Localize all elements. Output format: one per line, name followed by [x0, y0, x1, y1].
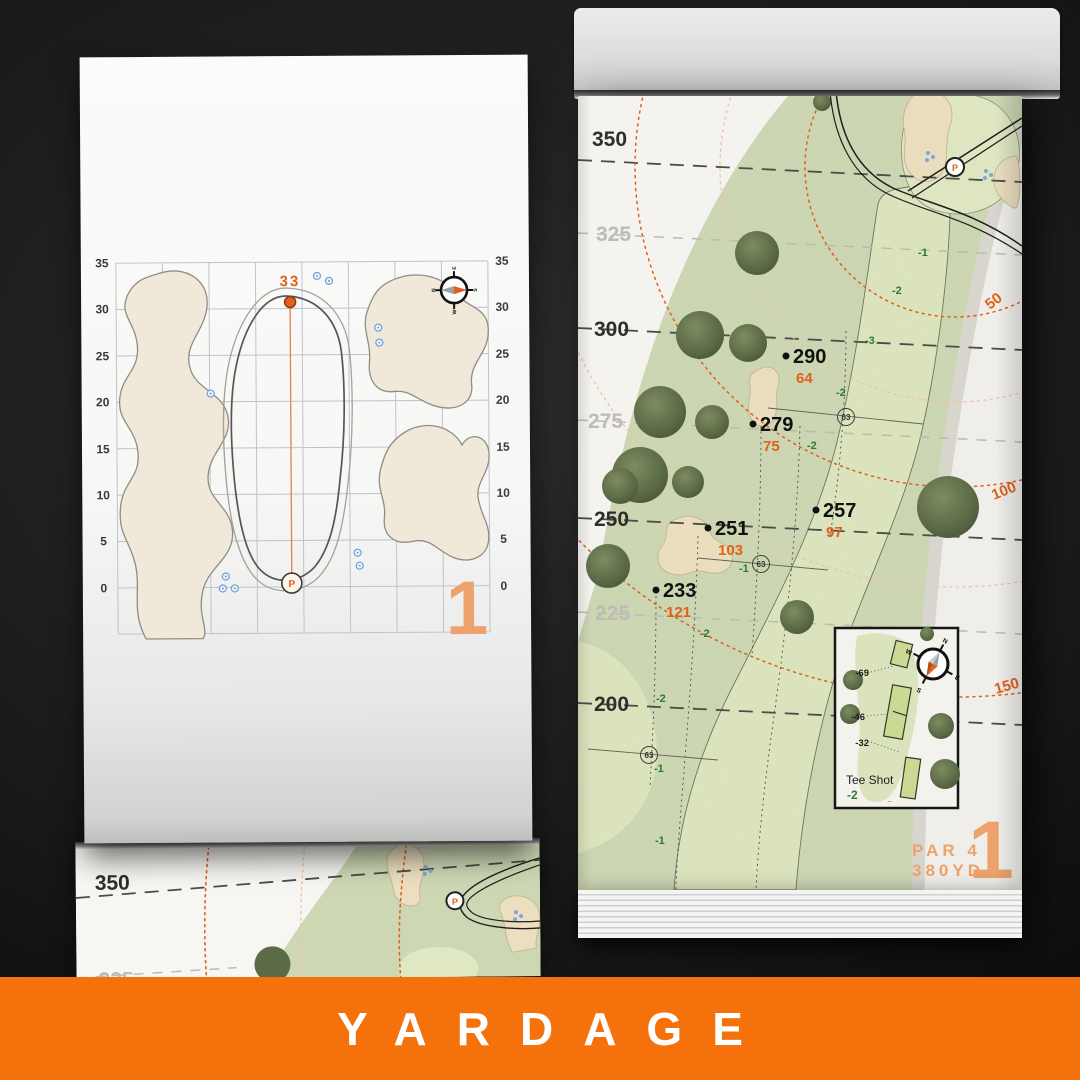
- svg-text:275: 275: [588, 410, 623, 433]
- green-outline-outer: [223, 288, 354, 591]
- bunkers: [119, 269, 491, 639]
- svg-text:-2: -2: [836, 387, 846, 399]
- hole-map: P 63 63 63 -1 -2 -3 -2 -2 -1 -2 -2 -1 -1: [578, 96, 1022, 890]
- svg-text:35: 35: [95, 256, 109, 270]
- svg-text:10: 10: [497, 486, 511, 500]
- svg-text:15: 15: [496, 440, 510, 454]
- svg-text:-1: -1: [739, 563, 749, 575]
- svg-text:15: 15: [96, 442, 110, 456]
- svg-text:121: 121: [666, 604, 691, 621]
- page-stack-edges[interactable]: [578, 890, 1022, 938]
- hole-map-art: P 63 63 63 -1 -2 -3 -2 -2 -1 -2 -2 -1 -1: [578, 96, 1022, 890]
- tee-shot-inset: -69 -46 -32 N E S: [835, 624, 974, 808]
- svg-text:75: 75: [763, 438, 780, 455]
- svg-text:-2: -2: [700, 628, 710, 640]
- svg-text:257: 257: [823, 500, 856, 522]
- pin-symbol: P: [288, 579, 295, 590]
- svg-text:20: 20: [496, 393, 510, 407]
- svg-text:325: 325: [596, 223, 631, 246]
- svg-text:63: 63: [842, 413, 851, 422]
- svg-text:20: 20: [96, 395, 110, 409]
- svg-text:350: 350: [592, 128, 627, 151]
- svg-text:290: 290: [793, 346, 826, 368]
- bottom-page-map: P 350 325: [75, 838, 540, 980]
- right-page-hole-map: P 63 63 63 -1 -2 -3 -2 -2 -1 -2 -2 -1 -1: [578, 8, 1022, 938]
- svg-text:25: 25: [96, 349, 110, 363]
- tee-dots: ..: [887, 794, 892, 804]
- hole-number: 1: [968, 805, 1014, 890]
- compass-w: W: [452, 309, 458, 314]
- bottom-left-partial-page: P 350 325: [75, 838, 540, 980]
- green-outline-inner: [231, 296, 346, 581]
- svg-text:-32: -32: [855, 738, 869, 749]
- svg-text:-1: -1: [655, 835, 665, 847]
- svg-text:35: 35: [495, 254, 509, 268]
- svg-text:-2: -2: [807, 440, 817, 452]
- svg-text:0: 0: [500, 579, 507, 593]
- svg-text:279: 279: [760, 414, 793, 436]
- svg-text:64: 64: [796, 370, 813, 387]
- svg-text:-2: -2: [656, 693, 666, 705]
- svg-text:97: 97: [826, 524, 843, 541]
- svg-text:25: 25: [496, 347, 510, 361]
- svg-text:300: 300: [594, 318, 629, 341]
- yardage-label-350: 350: [95, 872, 130, 895]
- svg-text:30: 30: [495, 300, 509, 314]
- tee-shot-title: Tee Shot: [846, 773, 894, 787]
- svg-text:225: 225: [595, 602, 630, 625]
- svg-text:-1: -1: [654, 763, 664, 775]
- compass-n: N: [431, 288, 437, 292]
- svg-text:103: 103: [718, 542, 743, 559]
- compass-e: E: [452, 266, 458, 270]
- svg-text:-46: -46: [851, 712, 865, 723]
- left-page-green-detail: 33 P N E: [80, 55, 533, 844]
- pin-symbol: P: [952, 163, 958, 173]
- pin-symbol: P: [452, 897, 458, 907]
- footer-band: YARDAGE: [0, 977, 1080, 1080]
- svg-text:63: 63: [757, 560, 766, 569]
- svg-text:233: 233: [663, 580, 696, 602]
- green-detail-chart: 33 P N E: [89, 249, 515, 644]
- green-depth-label: 33: [280, 273, 301, 290]
- svg-text:-2: -2: [892, 285, 902, 297]
- svg-text:5: 5: [500, 532, 507, 546]
- yardage-book-mockup: { "footer": { "title": "YARDAGE" }, "col…: [0, 0, 1080, 1080]
- flipped-cover[interactable]: [574, 8, 1060, 92]
- svg-text:-69: -69: [855, 668, 869, 679]
- svg-text:250: 250: [594, 508, 629, 531]
- footer-title: YARDAGE: [307, 1002, 773, 1056]
- svg-text:10: 10: [97, 488, 111, 502]
- depth-dot: [285, 297, 296, 308]
- svg-text:-3: -3: [865, 335, 875, 347]
- svg-text:30: 30: [95, 302, 109, 316]
- svg-text:-1: -1: [918, 247, 928, 259]
- compass-s: S: [473, 288, 479, 292]
- svg-text:200: 200: [594, 693, 629, 716]
- svg-text:0: 0: [100, 581, 107, 595]
- svg-text:63: 63: [645, 751, 654, 760]
- svg-text:251: 251: [715, 518, 748, 540]
- hole-number: 1: [446, 566, 489, 643]
- tee-shot-slope: -2: [847, 788, 858, 802]
- svg-text:5: 5: [100, 534, 107, 548]
- sprinklers: [206, 272, 384, 592]
